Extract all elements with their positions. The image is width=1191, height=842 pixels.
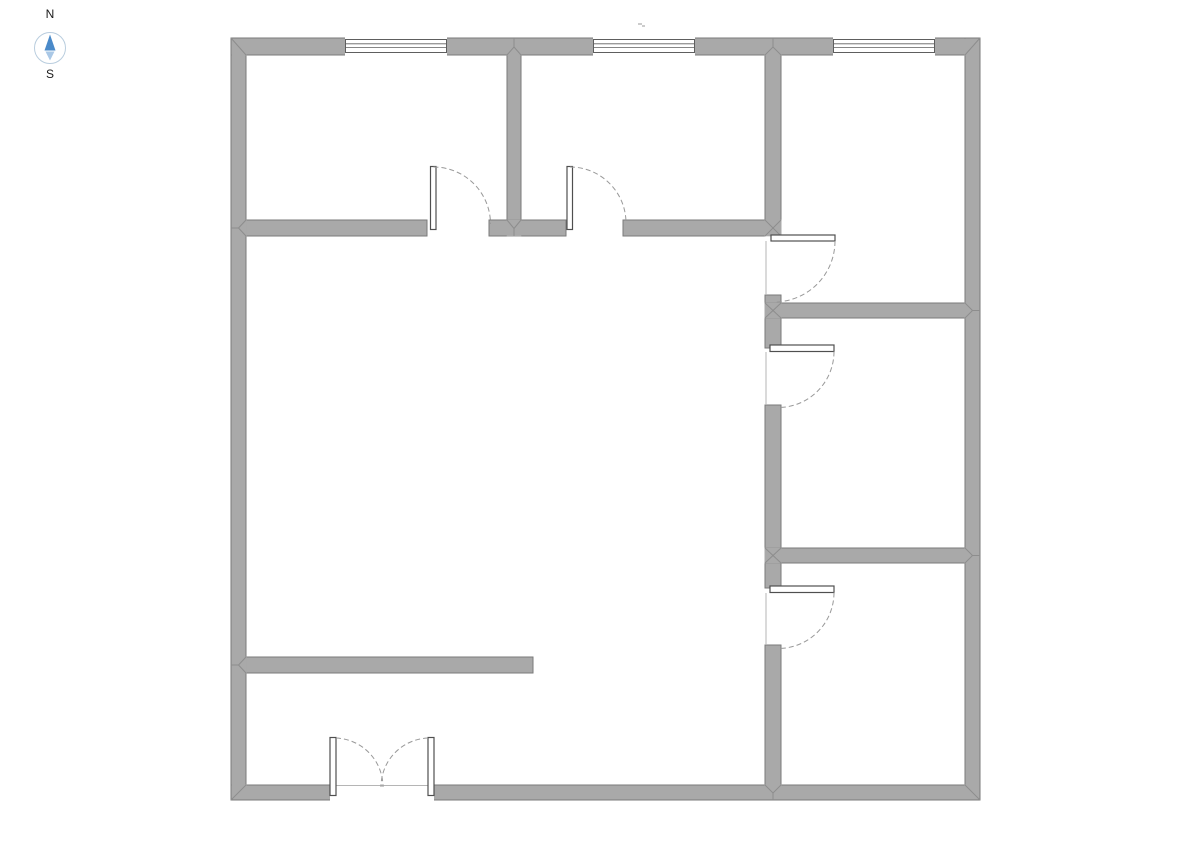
door-leaf (431, 167, 437, 230)
floorplan-canvas (0, 0, 1191, 842)
door-swing-arc (381, 738, 428, 787)
wall (489, 220, 566, 236)
door-leaf (330, 738, 336, 796)
window-frame (834, 40, 935, 53)
stray-mark (642, 25, 645, 27)
door-swing-arc (570, 167, 626, 223)
door-swing-arc (778, 593, 834, 649)
door-swing-arc (778, 352, 834, 408)
stray-mark (638, 23, 642, 25)
door-openings-layer (330, 241, 766, 801)
door-leaf (428, 738, 434, 796)
wall (231, 38, 246, 800)
window-frame (346, 40, 447, 53)
door-leaf (771, 235, 835, 241)
wall (765, 55, 781, 235)
door-opening (330, 784, 434, 800)
door-swing-arc (336, 738, 383, 787)
door-leaf (770, 586, 834, 593)
wall (246, 657, 533, 673)
marks-layer (638, 23, 645, 27)
wall-joints-layer (231, 38, 980, 800)
wall (507, 55, 521, 220)
wall (765, 645, 781, 785)
compass-south-label: S (46, 66, 54, 82)
door-leaf (770, 345, 834, 352)
wall (765, 303, 965, 318)
walls-layer (231, 38, 980, 800)
windows-layer (345, 37, 935, 55)
floorplan-page: N S (0, 0, 1191, 842)
door-swing-arc (434, 167, 491, 224)
wall (246, 220, 427, 236)
doors-layer (330, 167, 835, 796)
window-frame (594, 40, 695, 53)
compass-north-label: N (46, 6, 55, 22)
door-swing-arc (774, 241, 835, 302)
wall (765, 548, 965, 563)
compass-needle-graphic (32, 22, 68, 66)
compass-rose: N S (32, 6, 68, 82)
door-leaf (567, 167, 573, 230)
wall (965, 38, 980, 800)
wall (623, 220, 765, 236)
